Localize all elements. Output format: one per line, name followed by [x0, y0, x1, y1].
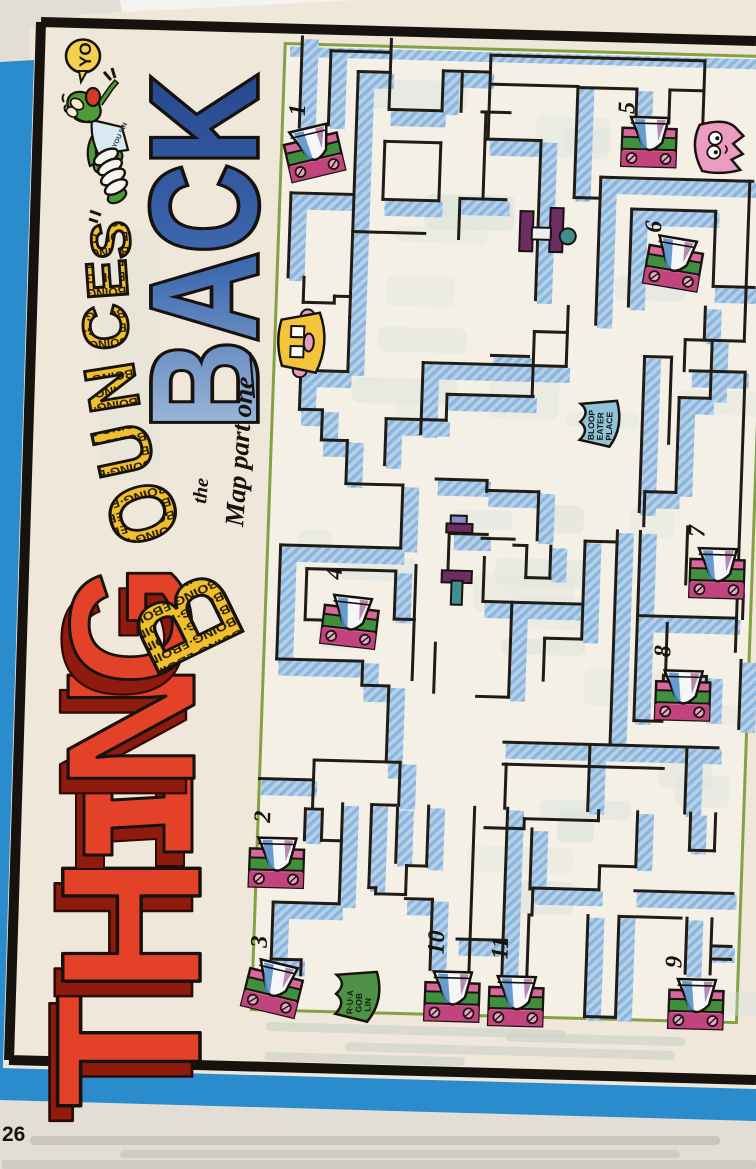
svg-text:C: C: [68, 301, 144, 354]
svg-text:8: 8: [650, 645, 676, 658]
svg-text:H: H: [21, 855, 243, 994]
svg-text:S: S: [79, 219, 143, 262]
svg-text:3: 3: [247, 935, 273, 949]
svg-text:4: 4: [321, 567, 347, 581]
svg-text:11: 11: [487, 936, 514, 959]
svg-text:26: 26: [2, 1123, 25, 1146]
svg-text:10: 10: [424, 930, 451, 955]
svg-text:6: 6: [641, 220, 667, 233]
svg-text:5: 5: [614, 101, 640, 114]
svg-text:E: E: [75, 257, 141, 301]
svg-text:9: 9: [661, 956, 687, 969]
svg-text:7: 7: [684, 524, 710, 538]
svg-text:LIN: LIN: [362, 998, 372, 1012]
svg-text:PLACE: PLACE: [604, 411, 615, 440]
svg-text:1: 1: [285, 104, 311, 117]
svg-text:2: 2: [250, 810, 276, 824]
svg-text:YO: YO: [76, 42, 95, 67]
